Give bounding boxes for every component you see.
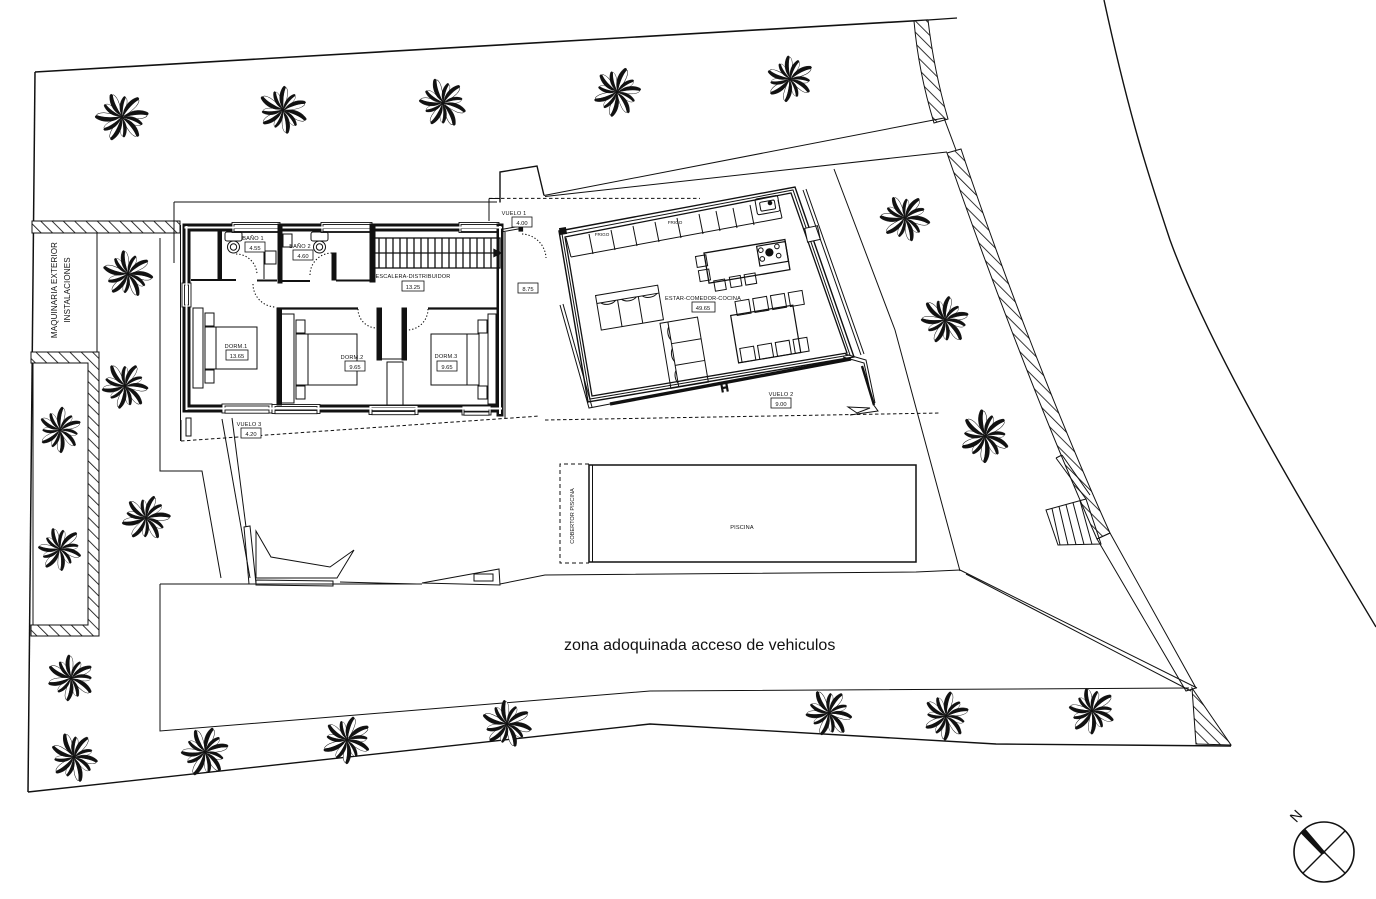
- svg-text:9.65: 9.65: [441, 365, 452, 371]
- svg-text:4.55: 4.55: [249, 246, 260, 252]
- svg-text:VUELO 3: VUELO 3: [237, 422, 262, 428]
- svg-text:VUELO 2: VUELO 2: [769, 392, 794, 398]
- svg-text:zona adoquinada acceso de vehi: zona adoquinada acceso de vehiculos: [564, 637, 835, 654]
- svg-text:4.00: 4.00: [516, 221, 527, 227]
- svg-text:ESCALERA-DISTRIBUIDOR: ESCALERA-DISTRIBUIDOR: [376, 274, 451, 280]
- svg-text:INSTALACIONES: INSTALACIONES: [63, 257, 72, 322]
- svg-text:DORM.1: DORM.1: [225, 344, 248, 350]
- svg-text:FRIGO: FRIGO: [595, 232, 610, 237]
- svg-text:4.60: 4.60: [297, 254, 308, 260]
- svg-text:VUELO 1: VUELO 1: [502, 211, 527, 217]
- svg-text:ESTAR-COMEDOR-COCINA: ESTAR-COMEDOR-COCINA: [665, 296, 741, 302]
- svg-text:DORM.2: DORM.2: [341, 355, 364, 361]
- svg-text:BAÑO 2: BAÑO 2: [289, 243, 310, 250]
- svg-text:PISCINA: PISCINA: [730, 525, 754, 531]
- svg-text:9.65: 9.65: [349, 365, 360, 371]
- svg-text:COBERTOR PISCINA: COBERTOR PISCINA: [570, 488, 576, 544]
- svg-text:MAQUINARIA EXTERIOR: MAQUINARIA EXTERIOR: [50, 242, 59, 338]
- svg-text:FRIGO: FRIGO: [668, 220, 683, 225]
- svg-text:N: N: [1287, 807, 1306, 825]
- svg-text:8.75: 8.75: [522, 287, 533, 293]
- svg-text:4.20: 4.20: [245, 432, 256, 438]
- svg-text:DORM.3: DORM.3: [435, 354, 458, 360]
- svg-text:13.65: 13.65: [230, 354, 245, 360]
- svg-text:9.00: 9.00: [775, 402, 786, 408]
- svg-text:49.65: 49.65: [696, 306, 711, 312]
- svg-text:13.25: 13.25: [406, 285, 421, 291]
- svg-text:BAÑO 1: BAÑO 1: [242, 235, 263, 242]
